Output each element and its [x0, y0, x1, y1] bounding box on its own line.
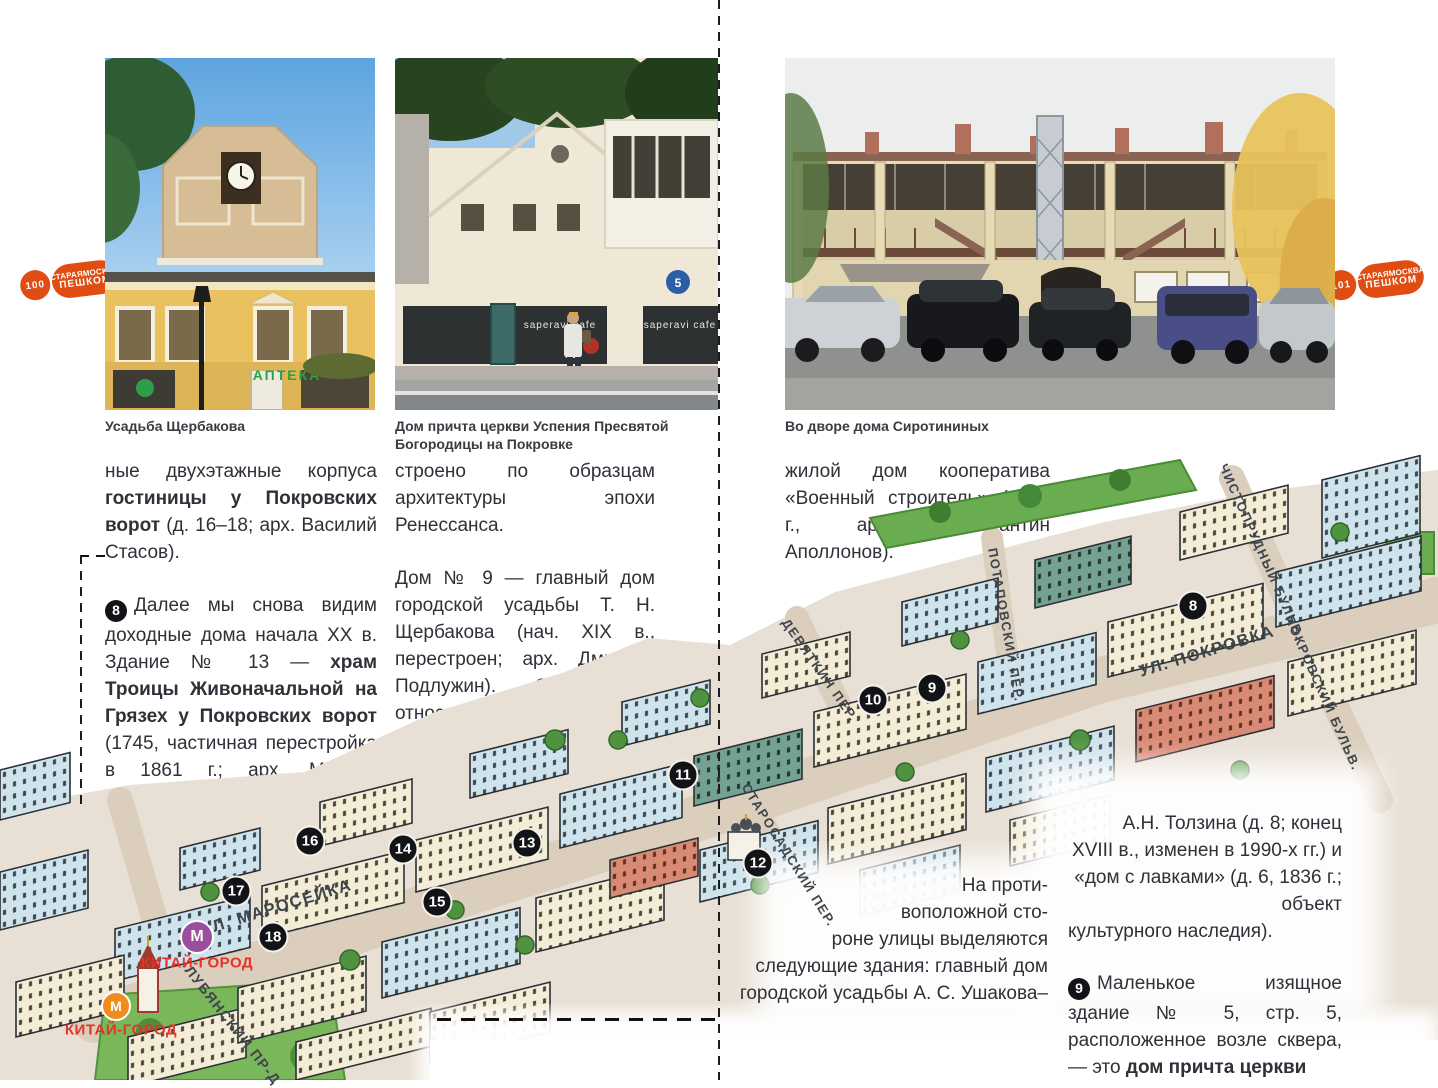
map-marker-18: 18	[258, 922, 289, 953]
overlay-text-right-page: А.Н. Толзина (д. 8; конец XVIII в., изме…	[1068, 810, 1342, 1081]
map-marker-11: 11	[668, 760, 699, 791]
route-frame-bottom-dash	[437, 1018, 723, 1021]
photo-saperavi-cafe-house: 5 saperavi cafe saperavi cafe	[395, 58, 718, 410]
metro-icon-orange: М	[101, 991, 131, 1021]
photo1-caption: Усадьба Щербакова	[105, 417, 375, 435]
overlay-text-left-page: На проти- воположной сто- роне улицы выд…	[718, 872, 1048, 1007]
route-frame-left-dash	[80, 555, 82, 805]
paragraph-9: 9Маленькое изящное здание № 5, стр. 5, р…	[1068, 970, 1342, 1081]
photo3-caption: Во дворе дома Сиротининых	[785, 417, 1185, 435]
map-marker-10: 10	[858, 685, 889, 716]
route-frame-corner-dash	[80, 555, 106, 557]
photo-usadba-scherbakova: АПТЕКА	[105, 58, 375, 410]
address-plate: 5	[675, 276, 682, 290]
metro-icon-purple: М	[180, 920, 214, 954]
center-page-divider-dashed	[718, 0, 720, 1080]
map-marker-13: 13	[512, 828, 543, 859]
tolzina-last-line: культурного наследия).	[1068, 918, 1342, 945]
map-marker-14: 14	[388, 834, 419, 865]
tolzina-lines: А.Н. Толзина (д. 8; конец XVIII в., изме…	[1068, 810, 1342, 918]
cafe-sign-2: saperavi cafe	[644, 320, 716, 331]
map-marker-8: 8	[1178, 591, 1209, 622]
photo-sirotininy-courtyard	[785, 58, 1335, 410]
brand-logo-right: СТАРАЯМОСКВА ПЕШКОМ	[1356, 258, 1426, 300]
page-number-left: 100	[19, 268, 52, 301]
map-marker-9: 9	[917, 673, 948, 704]
map-marker-16: 16	[295, 826, 326, 857]
text-run-bold: дом причта церкви	[1126, 1057, 1306, 1078]
route-point-9-badge: 9	[1068, 978, 1090, 1000]
page-badge-right: 101 СТАРАЯМОСКВА ПЕШКОМ	[1324, 258, 1425, 304]
map-marker-17: 17	[221, 876, 252, 907]
metro-station-label-2: КИТАЙ-ГОРОД	[65, 1022, 177, 1039]
metro-station-label-1: КИТАЙ-ГОРОД	[141, 955, 253, 972]
map-marker-15: 15	[422, 887, 453, 918]
cafe-sign-1: saperavi cafe	[524, 320, 596, 331]
